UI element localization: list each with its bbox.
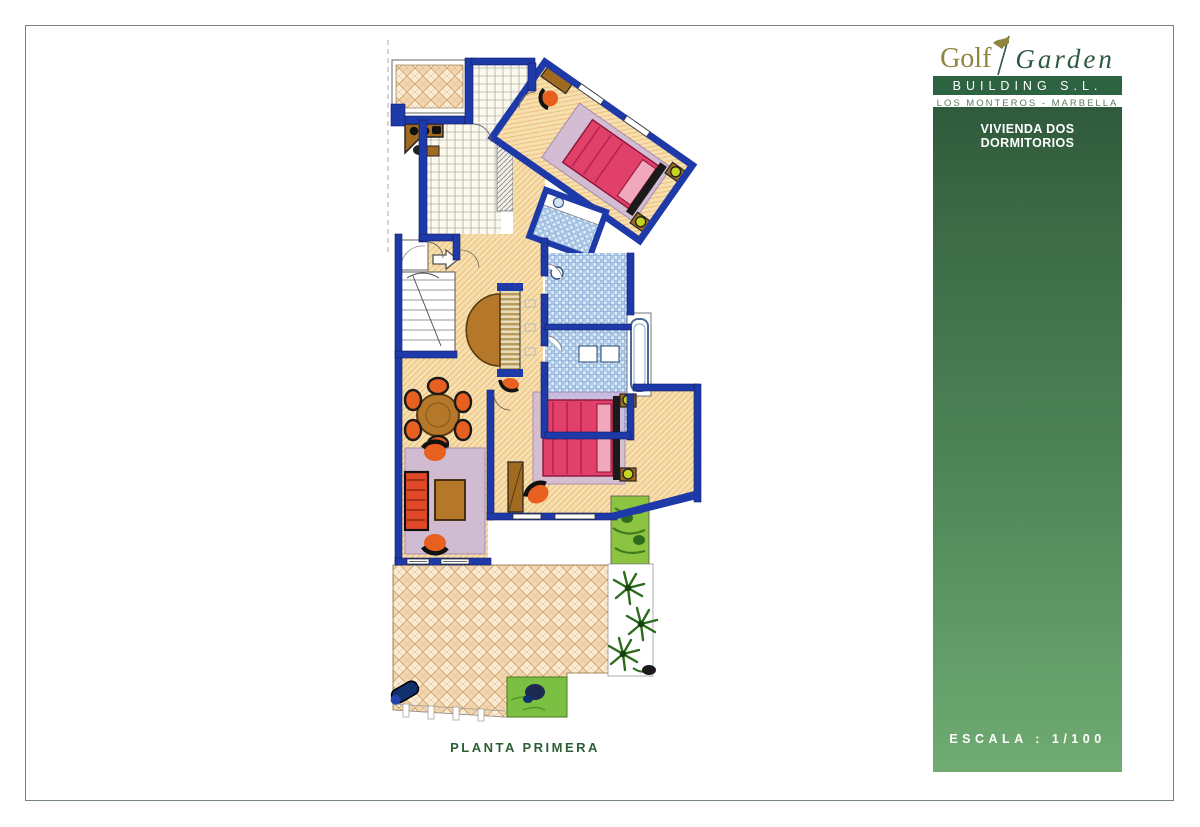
garden-strip xyxy=(608,496,657,676)
living-room xyxy=(405,442,485,554)
brand-block: Golf Garden BUILDING S.L. LOS MONTEROS -… xyxy=(933,30,1122,109)
lawn-patch xyxy=(507,677,567,717)
floor-plan-svg xyxy=(383,28,703,738)
logo-word-golf: Golf xyxy=(940,44,991,74)
brand-logo: Golf Garden xyxy=(933,30,1122,74)
panel-heading: VIVIENDA DOS DORMITORIOS xyxy=(933,122,1122,150)
logo-word-garden: Garden xyxy=(1015,44,1115,74)
side-panel: VIVIENDA DOS DORMITORIOS ESCALA : 1/100 xyxy=(933,107,1122,772)
scale-label: ESCALA : 1/100 xyxy=(933,732,1122,746)
brand-tagline-bar: BUILDING S.L. xyxy=(933,76,1122,95)
document-sheet: PLANTA PRIMERA Golf Garden BUILDING S.L.… xyxy=(0,0,1200,827)
floor-plan xyxy=(383,28,703,738)
plan-caption: PLANTA PRIMERA xyxy=(398,740,652,755)
golf-flag-icon xyxy=(992,34,1014,76)
